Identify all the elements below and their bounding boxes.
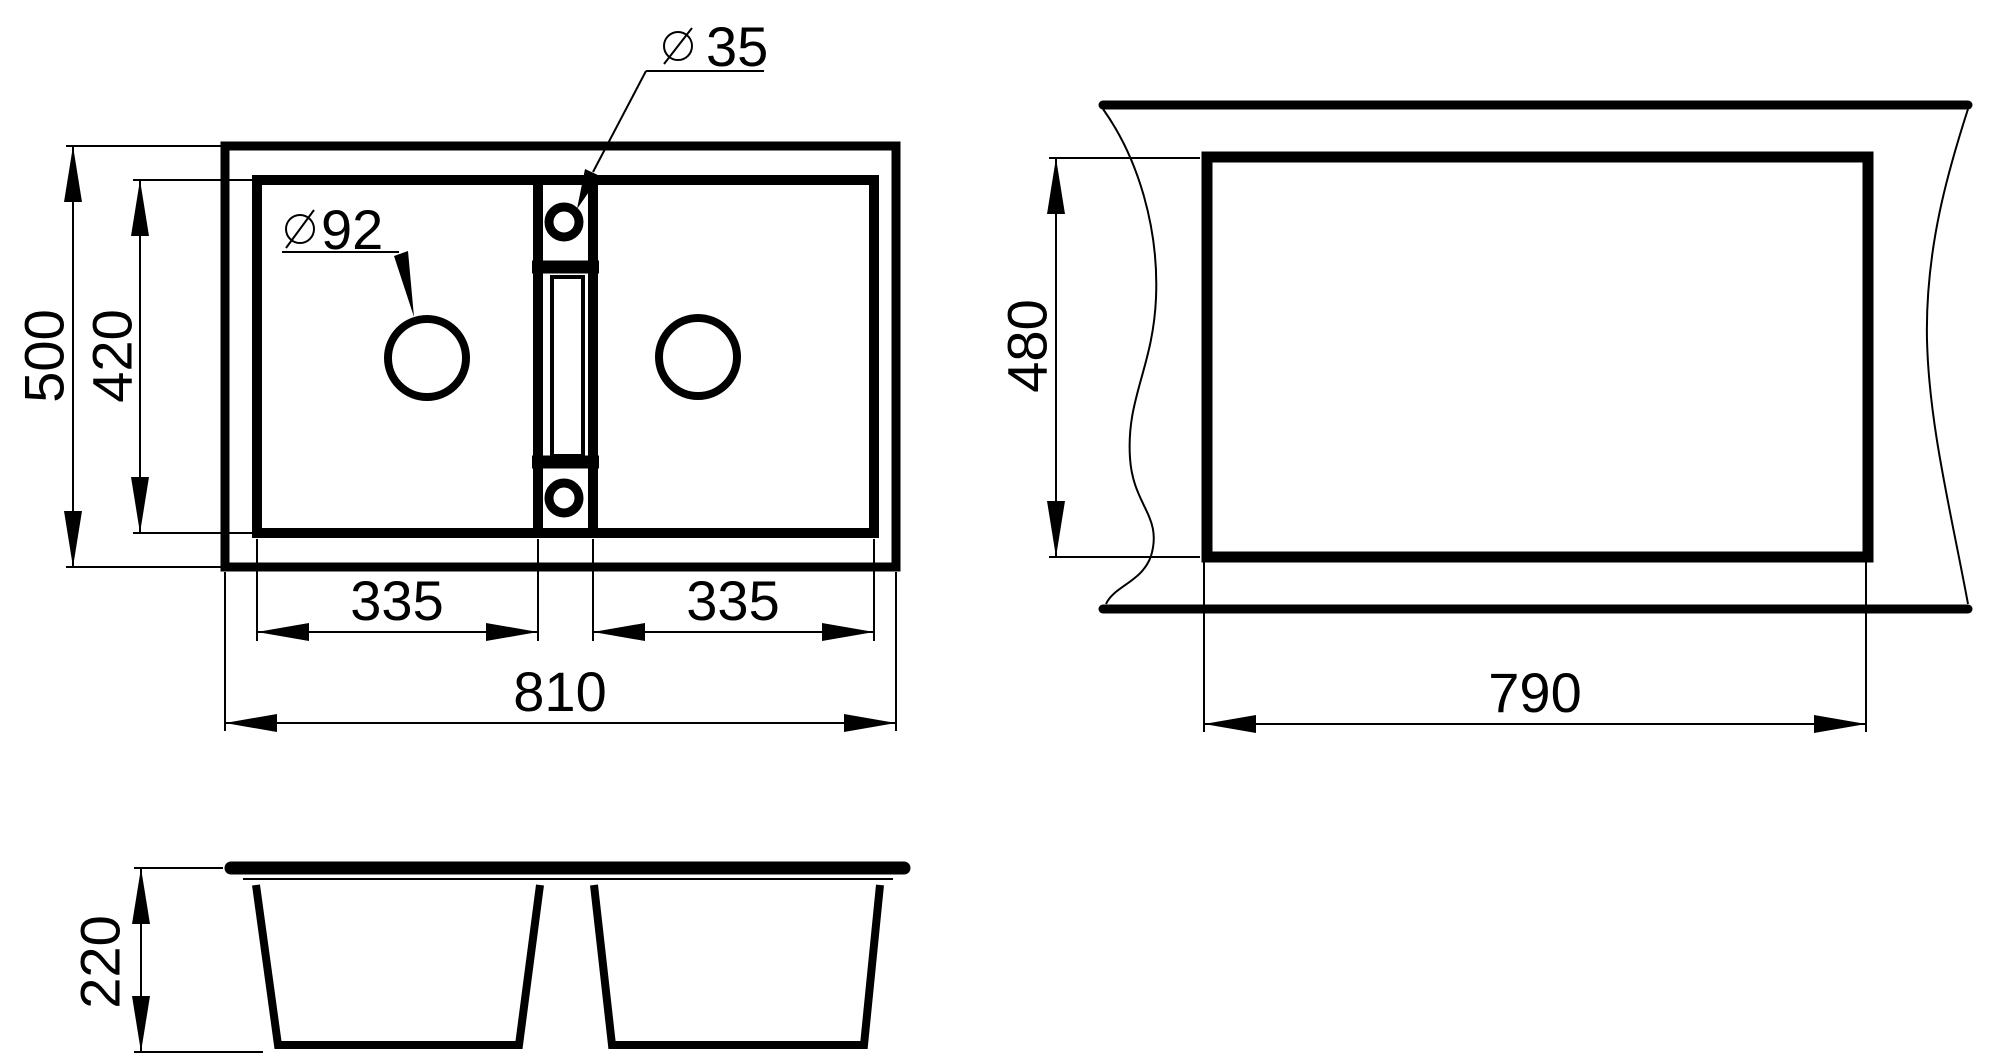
dim-335-left: 335 xyxy=(257,539,538,641)
leader-line xyxy=(593,71,646,172)
drain-diameter-callout: 92 xyxy=(282,198,414,317)
dimension-arrow xyxy=(132,868,150,924)
dim-220: 220 xyxy=(69,868,264,1052)
drain-circle-right xyxy=(659,318,737,396)
tap-hole-bottom xyxy=(549,483,579,513)
dimension-arrow xyxy=(486,623,538,641)
dimension-arrow xyxy=(822,623,874,641)
dim-790-label: 790 xyxy=(1488,661,1581,724)
dim-480-label: 480 xyxy=(996,299,1059,392)
leader-arrow xyxy=(394,251,414,317)
drain-circle-left xyxy=(388,319,466,397)
dim-500-label: 500 xyxy=(13,309,76,402)
dimension-arrow xyxy=(257,623,309,641)
dimension-arrow xyxy=(593,623,645,641)
diameter-symbol-slash xyxy=(664,28,692,64)
dim-810: 810 xyxy=(225,572,896,732)
dim-335-left-label: 335 xyxy=(350,569,443,632)
dimension-arrow xyxy=(1204,715,1256,733)
dimension-arrow xyxy=(131,180,149,236)
dimension-arrow xyxy=(1047,158,1065,214)
tap-hole-diameter-label: 35 xyxy=(706,15,768,78)
cutout-rect xyxy=(1207,157,1868,557)
dim-790: 790 xyxy=(1204,560,1866,733)
dim-810-label: 810 xyxy=(513,660,606,723)
dim-335-right: 335 xyxy=(593,539,874,641)
bowl-left-profile xyxy=(256,885,540,1045)
dimension-arrow xyxy=(64,146,82,202)
break-line-right xyxy=(1927,109,1968,604)
divider-channel xyxy=(552,277,583,456)
drawing-page: 92 35 500 420 335 xyxy=(0,0,2000,1060)
sink-technical-drawing: 92 35 500 420 335 xyxy=(0,0,2000,1060)
break-line-left xyxy=(1103,109,1156,604)
dim-335-right-label: 335 xyxy=(686,569,779,632)
dimension-arrow xyxy=(64,511,82,567)
dimension-arrow xyxy=(844,714,896,732)
sink-side-view xyxy=(231,868,904,1045)
dim-420-label: 420 xyxy=(81,309,144,402)
dim-480: 480 xyxy=(996,158,1201,557)
dimension-arrow xyxy=(132,996,150,1052)
dimension-arrow xyxy=(131,477,149,533)
bowl-right-profile xyxy=(594,885,880,1045)
dimension-arrow xyxy=(1814,715,1866,733)
tap-hole-top xyxy=(549,207,579,237)
cutout-view xyxy=(1103,105,1968,609)
dimension-arrow xyxy=(1047,501,1065,557)
dimension-arrow xyxy=(225,714,277,732)
dim-220-label: 220 xyxy=(69,915,132,1008)
